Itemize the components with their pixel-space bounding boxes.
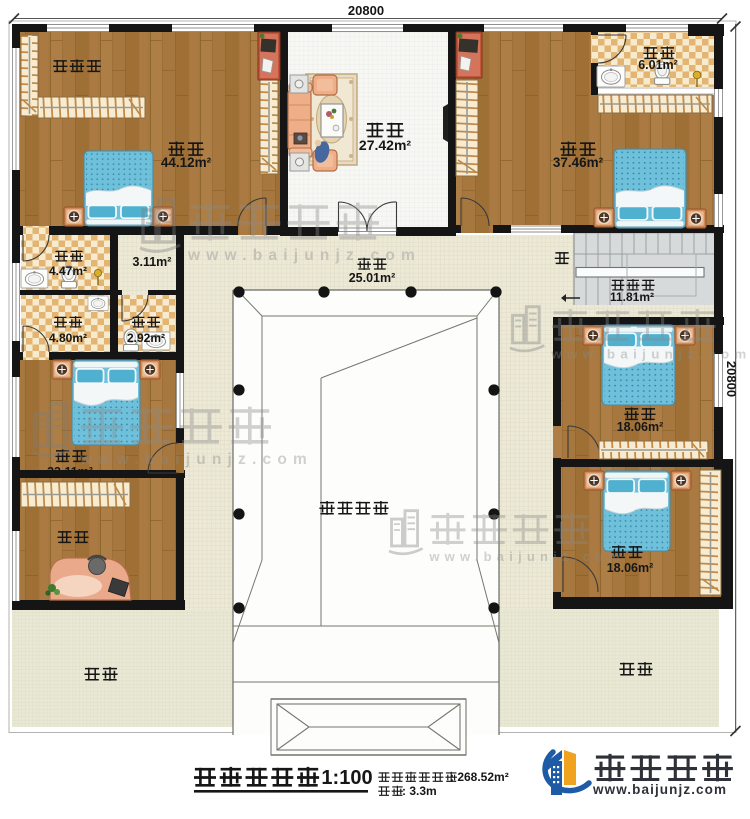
- svg-text:3.11m²: 3.11m²: [133, 255, 172, 269]
- svg-text:20800: 20800: [348, 3, 384, 18]
- svg-text:6.01m²: 6.01m²: [638, 58, 678, 72]
- svg-text:4.47m²: 4.47m²: [49, 264, 87, 278]
- svg-text:www.baijunjz.com: www.baijunjz.com: [79, 451, 313, 468]
- svg-text:: 268.52m²: : 268.52m²: [450, 770, 509, 784]
- svg-text:18.06m²: 18.06m²: [617, 420, 664, 434]
- svg-text:www.baijunjz.com: www.baijunjz.com: [592, 782, 727, 797]
- svg-text:4.80m²: 4.80m²: [49, 331, 87, 345]
- svg-text:2.92m²: 2.92m²: [127, 331, 165, 345]
- svg-text:25.01m²: 25.01m²: [349, 271, 396, 285]
- svg-text:20800: 20800: [724, 361, 739, 397]
- svg-text:37.46m²: 37.46m²: [553, 155, 604, 170]
- svg-text:11.81m²: 11.81m²: [610, 290, 654, 304]
- svg-text:: 3.3m: : 3.3m: [402, 784, 437, 798]
- svg-text:1:100: 1:100: [321, 767, 372, 789]
- svg-text:44.12m²: 44.12m²: [161, 155, 212, 170]
- svg-text:www.baijunjz.com: www.baijunjz.com: [550, 346, 750, 361]
- svg-text:27.42m²: 27.42m²: [359, 137, 411, 153]
- svg-text:www.baijunjz.com: www.baijunjz.com: [428, 549, 625, 564]
- svg-text:www.baijunjz.com: www.baijunjz.com: [187, 247, 421, 264]
